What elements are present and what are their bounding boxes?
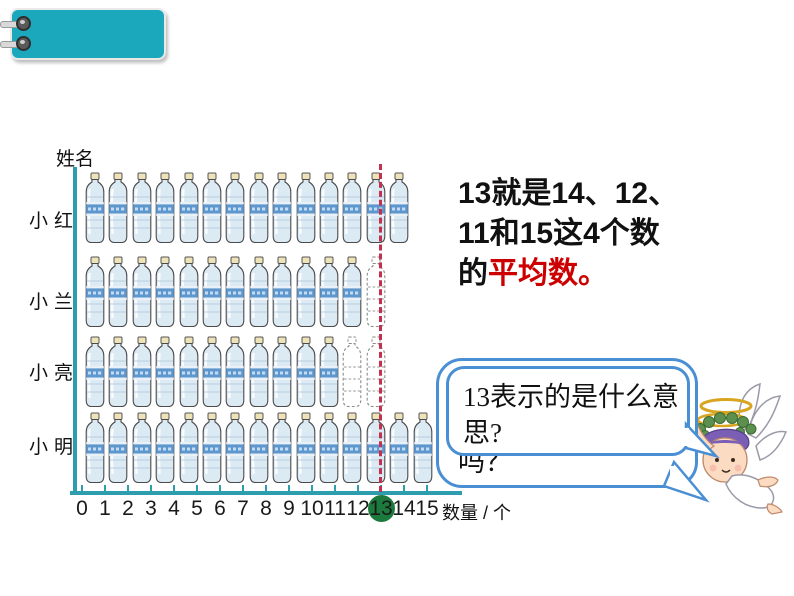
water-bottle-icon <box>107 256 129 328</box>
x-axis-unit-label: 数量 / 个 <box>442 499 511 525</box>
axis-tick <box>426 485 428 491</box>
axis-tick <box>173 485 175 491</box>
water-bottle-icon <box>224 256 246 328</box>
water-bottle-icon <box>154 336 176 408</box>
math-lesson-slide: 姓名 小红小兰小亮小明 0123456789101112131415 数量 / … <box>0 0 794 596</box>
annotation-line3-red: 平均数。 <box>488 257 608 290</box>
ghost-bottle-icon <box>365 336 387 408</box>
axis-tick <box>311 485 313 491</box>
water-bottle-icon <box>248 412 270 484</box>
axis-tick <box>196 485 198 491</box>
water-bottle-icon <box>318 336 340 408</box>
water-bottle-icon <box>131 336 153 408</box>
water-bottle-icon <box>295 412 317 484</box>
binder-ring-icon <box>0 16 34 32</box>
water-bottle-icon <box>84 256 106 328</box>
water-bottle-icon <box>224 412 246 484</box>
axis-tick <box>150 485 152 491</box>
water-bottle-icon <box>295 172 317 244</box>
ghost-bottle-icon <box>341 336 363 408</box>
axis-tick <box>127 485 129 491</box>
water-bottle-icon <box>84 412 106 484</box>
water-bottle-icon <box>84 336 106 408</box>
row-label: 小明 <box>26 432 82 459</box>
axis-tick <box>288 485 290 491</box>
water-bottle-icon <box>131 256 153 328</box>
average-explanation-text: 13就是14、12、 11和15这4个数 的平均数。 <box>458 174 778 294</box>
water-bottle-icon <box>365 172 387 244</box>
axis-tick <box>219 485 221 491</box>
water-bottle-icon <box>178 172 200 244</box>
water-bottle-icon <box>365 412 387 484</box>
ghost-bottle-icon <box>365 256 387 328</box>
binder-ring-icon <box>0 36 34 52</box>
water-bottle-icon <box>341 256 363 328</box>
water-bottle-icon <box>341 172 363 244</box>
water-bottle-icon <box>131 412 153 484</box>
water-bottle-icon <box>201 336 223 408</box>
water-bottle-icon <box>248 336 270 408</box>
water-bottle-icon <box>107 412 129 484</box>
annotation-line3-black: 的 <box>458 257 488 290</box>
axis-tick <box>242 485 244 491</box>
water-bottle-icon <box>388 172 410 244</box>
water-bottle-icon <box>107 172 129 244</box>
water-bottle-icon <box>412 412 434 484</box>
annotation-line2: 11和15这4个数 <box>458 217 660 250</box>
water-bottle-icon <box>84 172 106 244</box>
water-bottle-icon <box>271 336 293 408</box>
water-bottle-icon <box>271 412 293 484</box>
speech-bubble-text: 13表示的是什么意思? <box>463 382 679 448</box>
water-bottle-icon <box>318 256 340 328</box>
water-bottle-icon <box>178 336 200 408</box>
row-label: 小红 <box>26 206 82 233</box>
tick-label: 15 <box>412 497 442 521</box>
water-bottle-icon <box>295 256 317 328</box>
axis-tick <box>334 485 336 491</box>
water-bottle-icon <box>154 256 176 328</box>
average-dashed-line <box>379 164 382 492</box>
water-bottle-icon <box>224 172 246 244</box>
water-bottle-icon <box>271 256 293 328</box>
water-bottle-icon <box>318 412 340 484</box>
water-bottle-icon <box>154 172 176 244</box>
x-axis-line <box>70 491 462 495</box>
row-label: 小兰 <box>26 287 82 314</box>
axis-tick <box>104 485 106 491</box>
water-bottle-icon <box>107 336 129 408</box>
water-bottle-icon <box>201 256 223 328</box>
water-bottle-icon <box>295 336 317 408</box>
axis-tick <box>357 485 359 491</box>
water-bottle-icon <box>388 412 410 484</box>
water-bottle-icon <box>178 412 200 484</box>
water-bottle-icon <box>224 336 246 408</box>
water-bottle-icon <box>318 172 340 244</box>
axis-tick <box>81 485 83 491</box>
water-bottle-icon <box>271 172 293 244</box>
water-bottle-icon <box>201 172 223 244</box>
axis-tick <box>403 485 405 491</box>
water-bottle-icon <box>131 172 153 244</box>
water-bottle-icon <box>341 412 363 484</box>
row-label: 小亮 <box>26 358 82 385</box>
water-bottle-icon <box>201 412 223 484</box>
water-bottle-icon <box>248 256 270 328</box>
speech-bubble-inner: 13表示的是什么意思? <box>446 366 690 456</box>
water-bottle-icon <box>248 172 270 244</box>
water-bottle-icon <box>178 256 200 328</box>
axis-tick <box>265 485 267 491</box>
water-bottle-icon <box>154 412 176 484</box>
annotation-line1: 13就是14、12、 <box>458 177 678 210</box>
